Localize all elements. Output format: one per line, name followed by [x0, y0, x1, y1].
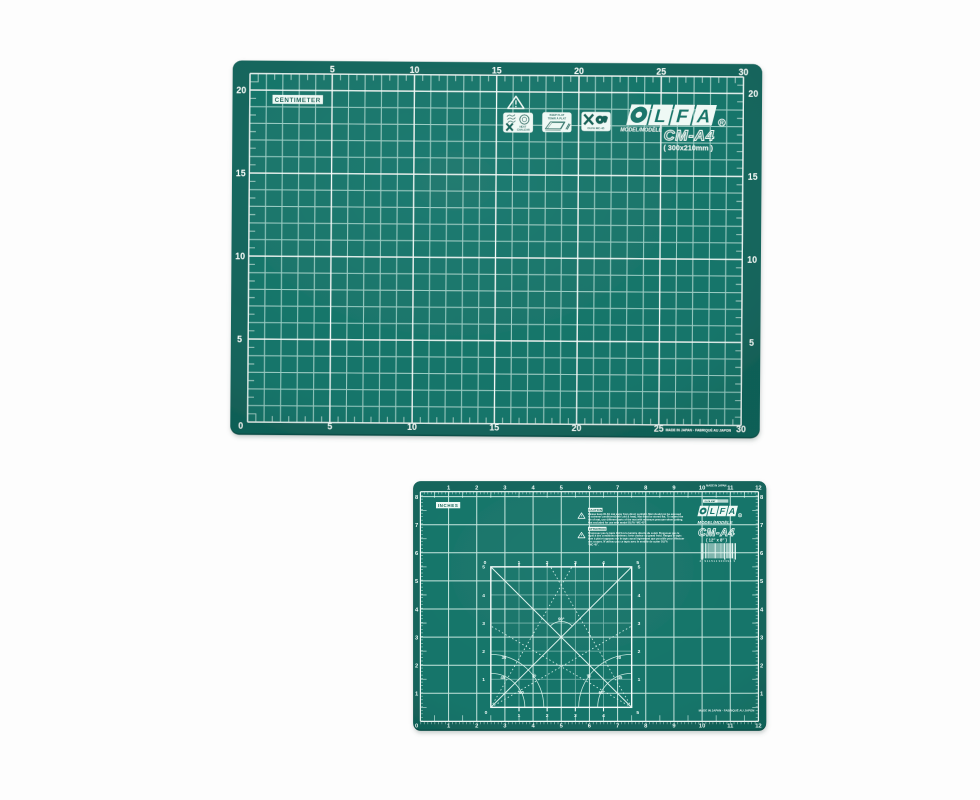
- svg-text:MADE IN JAPAN: MADE IN JAPAN: [706, 484, 726, 488]
- svg-text:MADE IN JAPAN · FABRIQUÉ AU JA: MADE IN JAPAN · FABRIQUÉ AU JAPON: [666, 427, 732, 432]
